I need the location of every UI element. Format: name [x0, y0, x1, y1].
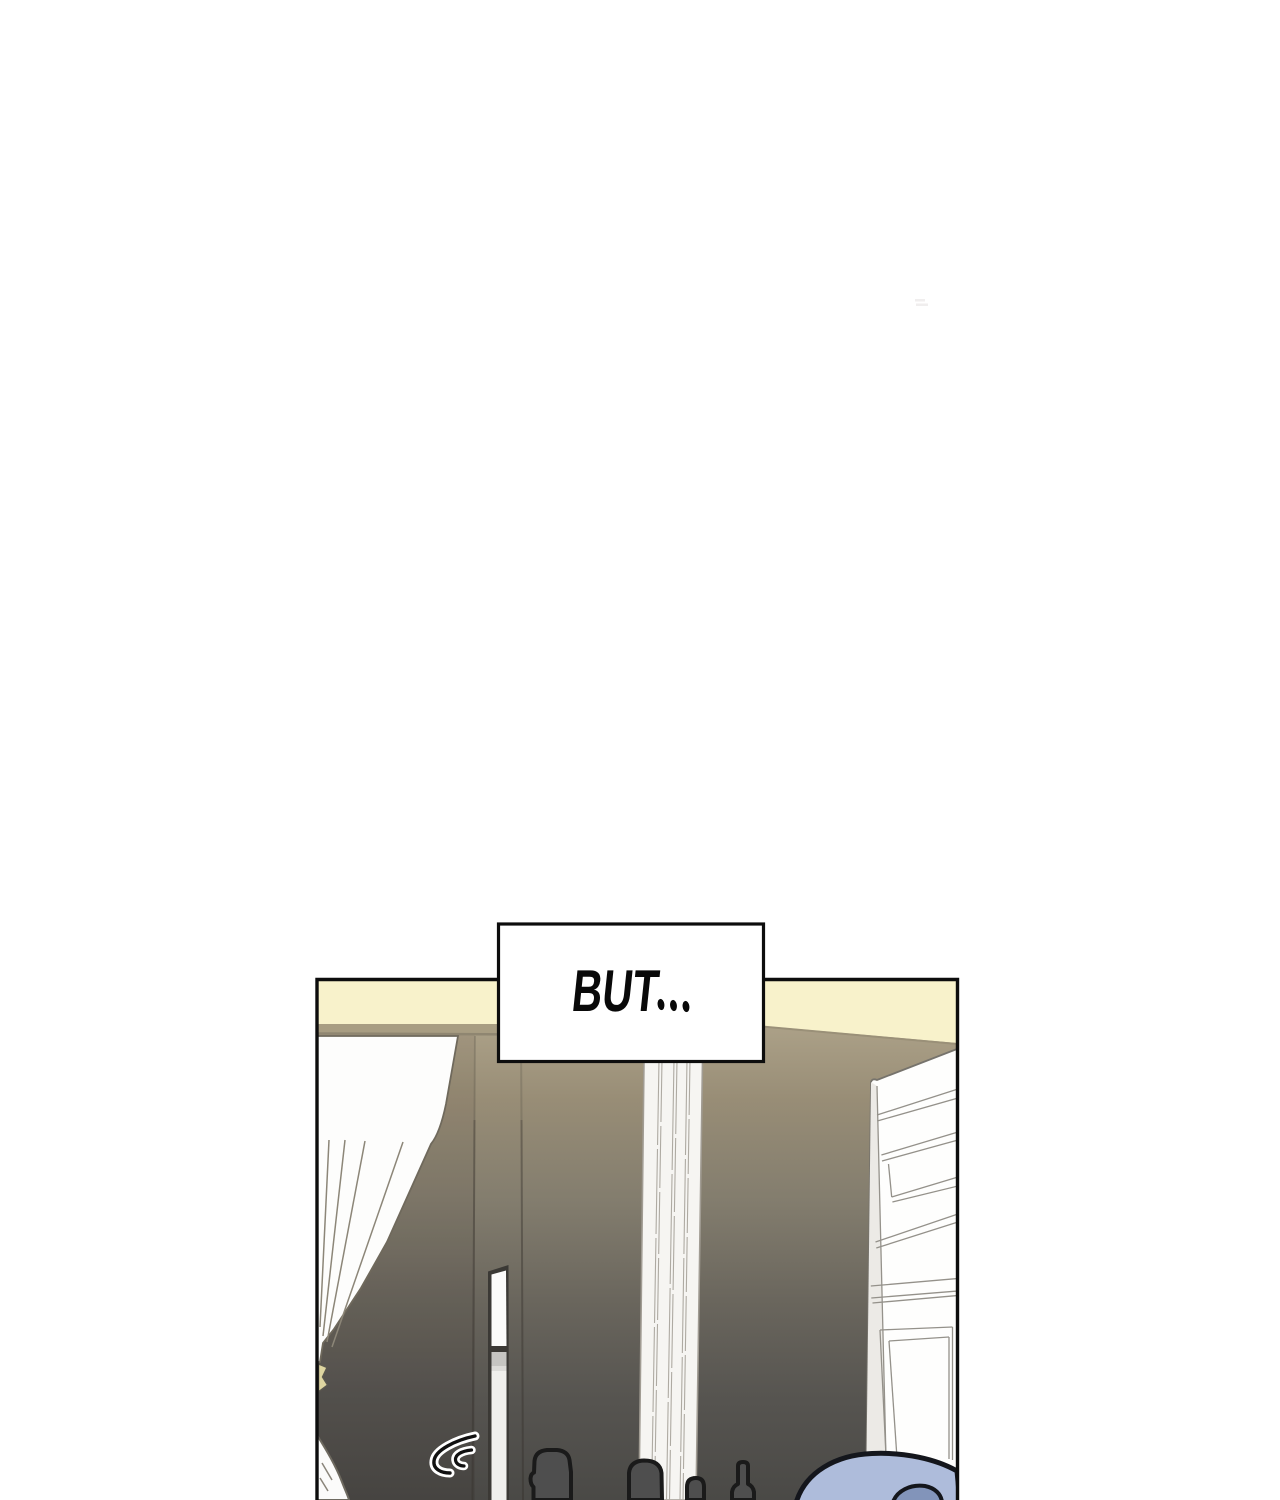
svg-text:BUT: BUT — [569, 957, 662, 1024]
